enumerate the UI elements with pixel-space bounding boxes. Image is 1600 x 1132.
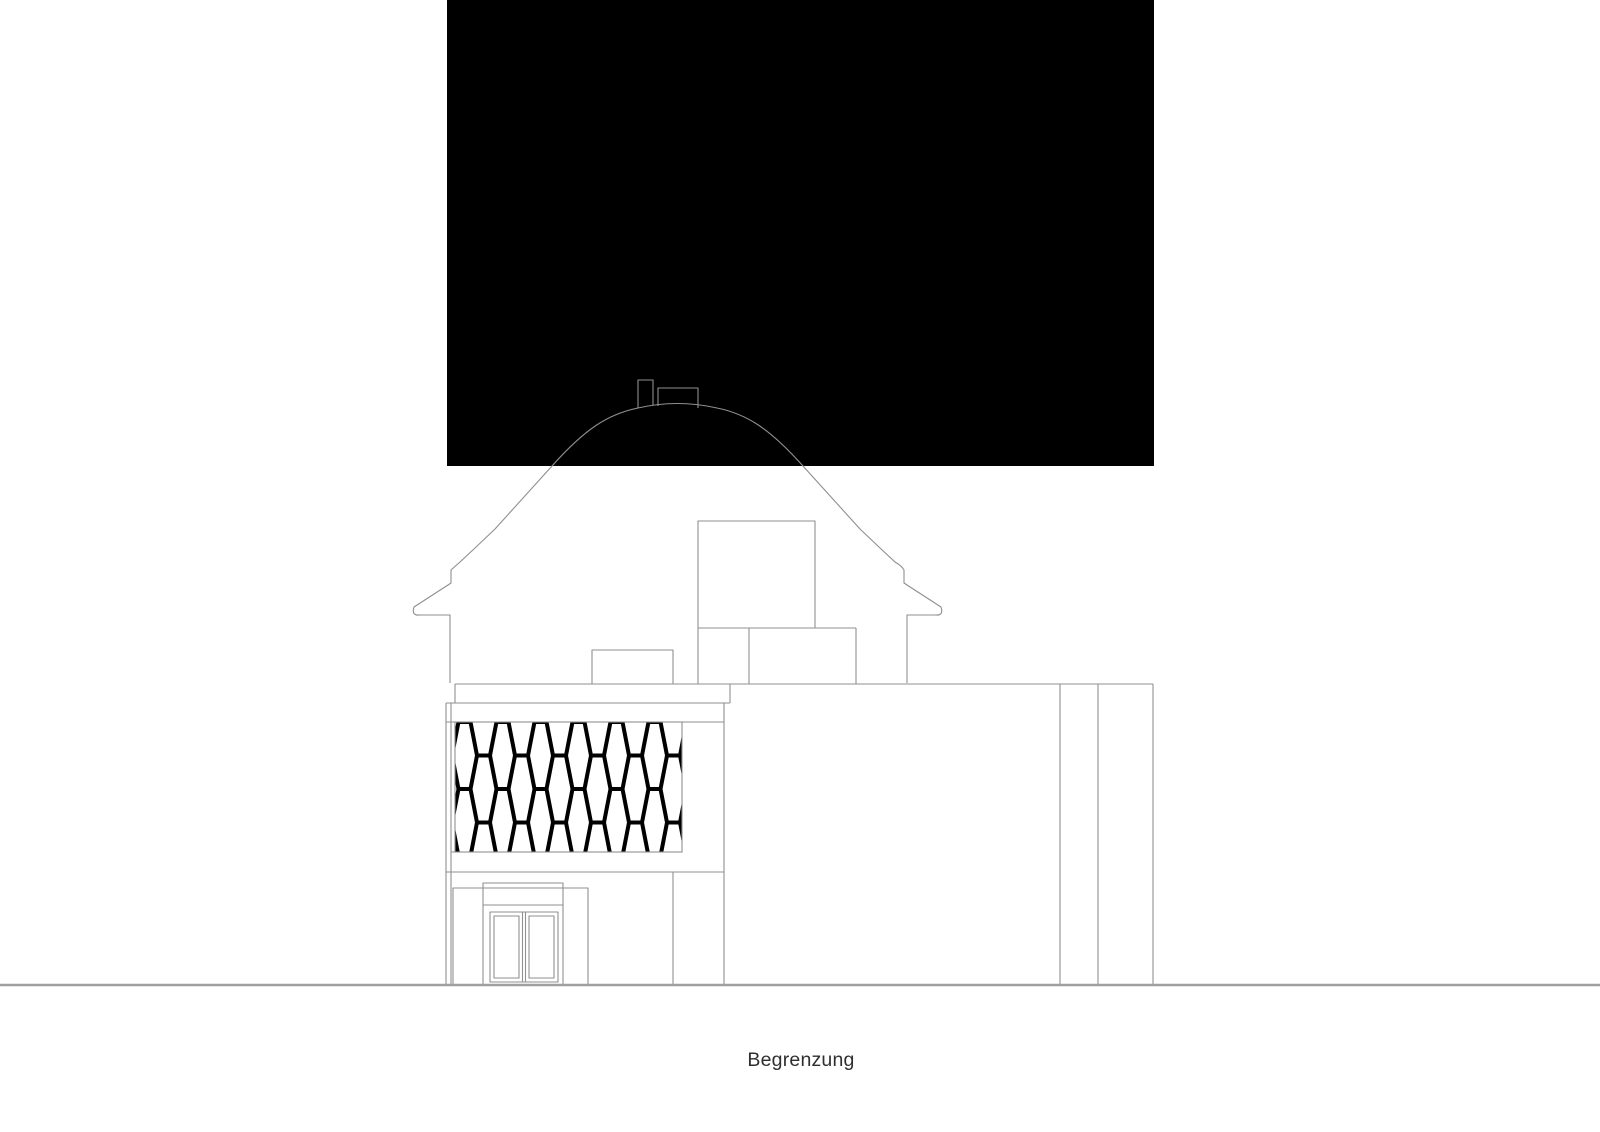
elevation-drawing-page: Begrenzung	[0, 0, 1600, 1132]
elevation-drawing: Begrenzung	[0, 0, 1600, 1132]
drawing-lines	[413, 380, 1153, 985]
left-wall-edges	[446, 703, 451, 985]
door-surround	[453, 888, 588, 985]
door-leaves	[490, 912, 558, 982]
fascia-band	[446, 684, 730, 703]
dormer-box	[698, 521, 815, 684]
caption-begrenzung: Begrenzung	[747, 1049, 854, 1071]
black-mask-rect	[447, 0, 1154, 466]
right-mass-edges	[1060, 684, 1153, 985]
hex-facade-panel	[455, 722, 682, 852]
attic-boxes	[698, 628, 856, 684]
panel-bottom-rail	[446, 852, 724, 872]
attic-box-small	[592, 650, 673, 684]
